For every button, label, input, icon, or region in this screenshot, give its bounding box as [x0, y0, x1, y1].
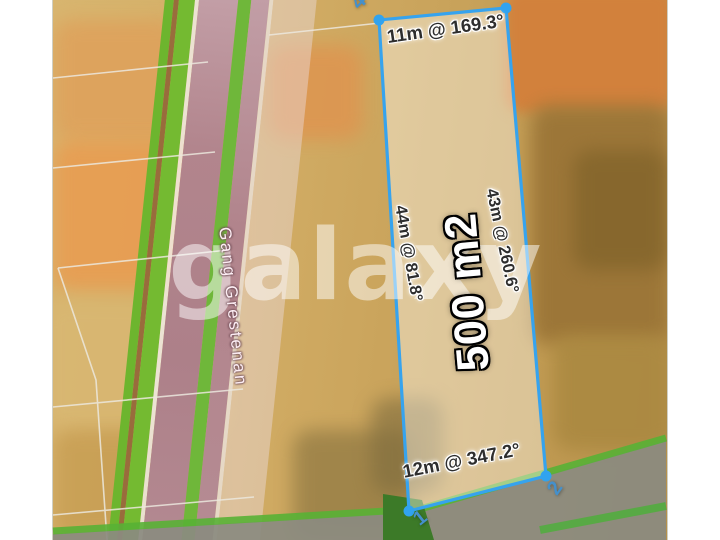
screen: galaxy 11m @ 169.3° 43m @ 260.6° 44m @ 8…: [0, 0, 720, 540]
parcel-vertex-handle[interactable]: [374, 15, 385, 26]
